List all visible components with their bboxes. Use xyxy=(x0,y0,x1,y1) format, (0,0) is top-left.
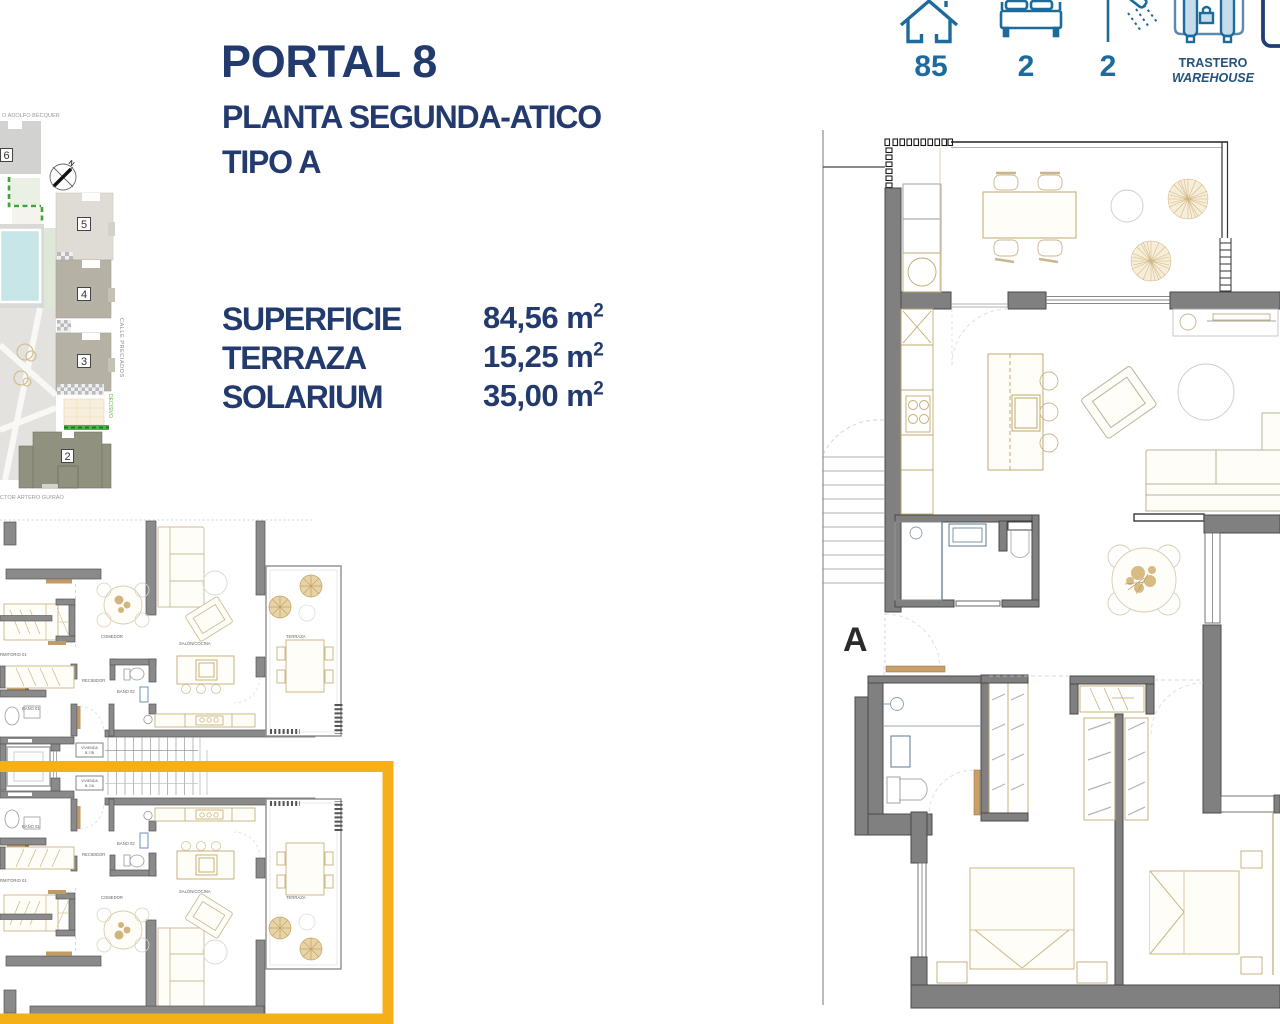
svg-text:TERRAZA: TERRAZA xyxy=(286,895,306,900)
svg-text:RECIBIDOR: RECIBIDOR xyxy=(82,678,105,683)
svg-text:N: N xyxy=(67,159,75,168)
svg-text:TERRAZA: TERRAZA xyxy=(286,634,306,639)
svg-text:RMITORIO 01: RMITORIO 01 xyxy=(0,878,27,883)
svg-text:COMEDOR: COMEDOR xyxy=(101,895,123,900)
svg-text:VIVIENDA: VIVIENDA xyxy=(81,779,98,783)
svg-text:B-7/B: B-7/B xyxy=(85,751,95,755)
svg-text:BAÑO 02: BAÑO 02 xyxy=(117,689,135,694)
svg-text:CTOR ARTERO GUIRAO: CTOR ARTERO GUIRAO xyxy=(0,495,64,501)
svg-text:3: 3 xyxy=(81,356,87,368)
svg-text:5: 5 xyxy=(81,219,87,231)
svg-text:CALLE PRECIADOS: CALLE PRECIADOS xyxy=(118,318,124,378)
svg-text:RMITORIO 01: RMITORIO 01 xyxy=(0,652,27,657)
svg-text:B-7/A: B-7/A xyxy=(85,784,95,788)
svg-text:A: A xyxy=(843,621,868,659)
svg-text:SALÓN/COCINA: SALÓN/COCINA xyxy=(179,641,211,646)
svg-text:TRASTERO: TRASTERO xyxy=(1179,56,1248,70)
svg-text:O ADOLFO BÉCQUER: O ADOLFO BÉCQUER xyxy=(2,112,60,119)
svg-text:BAÑO 02: BAÑO 02 xyxy=(117,841,135,846)
svg-text:85: 85 xyxy=(914,50,947,83)
svg-text:BAÑO 01: BAÑO 01 xyxy=(22,706,40,711)
svg-text:WAREHOUSE: WAREHOUSE xyxy=(1172,71,1255,85)
svg-text:2: 2 xyxy=(1100,50,1117,83)
svg-text:BAÑO 01: BAÑO 01 xyxy=(22,824,40,829)
svg-text:RECIBIDOR: RECIBIDOR xyxy=(82,852,105,857)
svg-text:2: 2 xyxy=(64,451,70,463)
svg-text:2: 2 xyxy=(1018,50,1035,83)
svg-text:COMEDOR: COMEDOR xyxy=(101,634,123,639)
svg-text:DECISIVO: DECISIVO xyxy=(107,394,113,418)
svg-text:SALÓN/COCINA: SALÓN/COCINA xyxy=(179,889,211,894)
svg-text:4: 4 xyxy=(81,289,87,301)
svg-text:VIVIENDA: VIVIENDA xyxy=(81,746,98,750)
svg-text:6: 6 xyxy=(3,150,9,162)
